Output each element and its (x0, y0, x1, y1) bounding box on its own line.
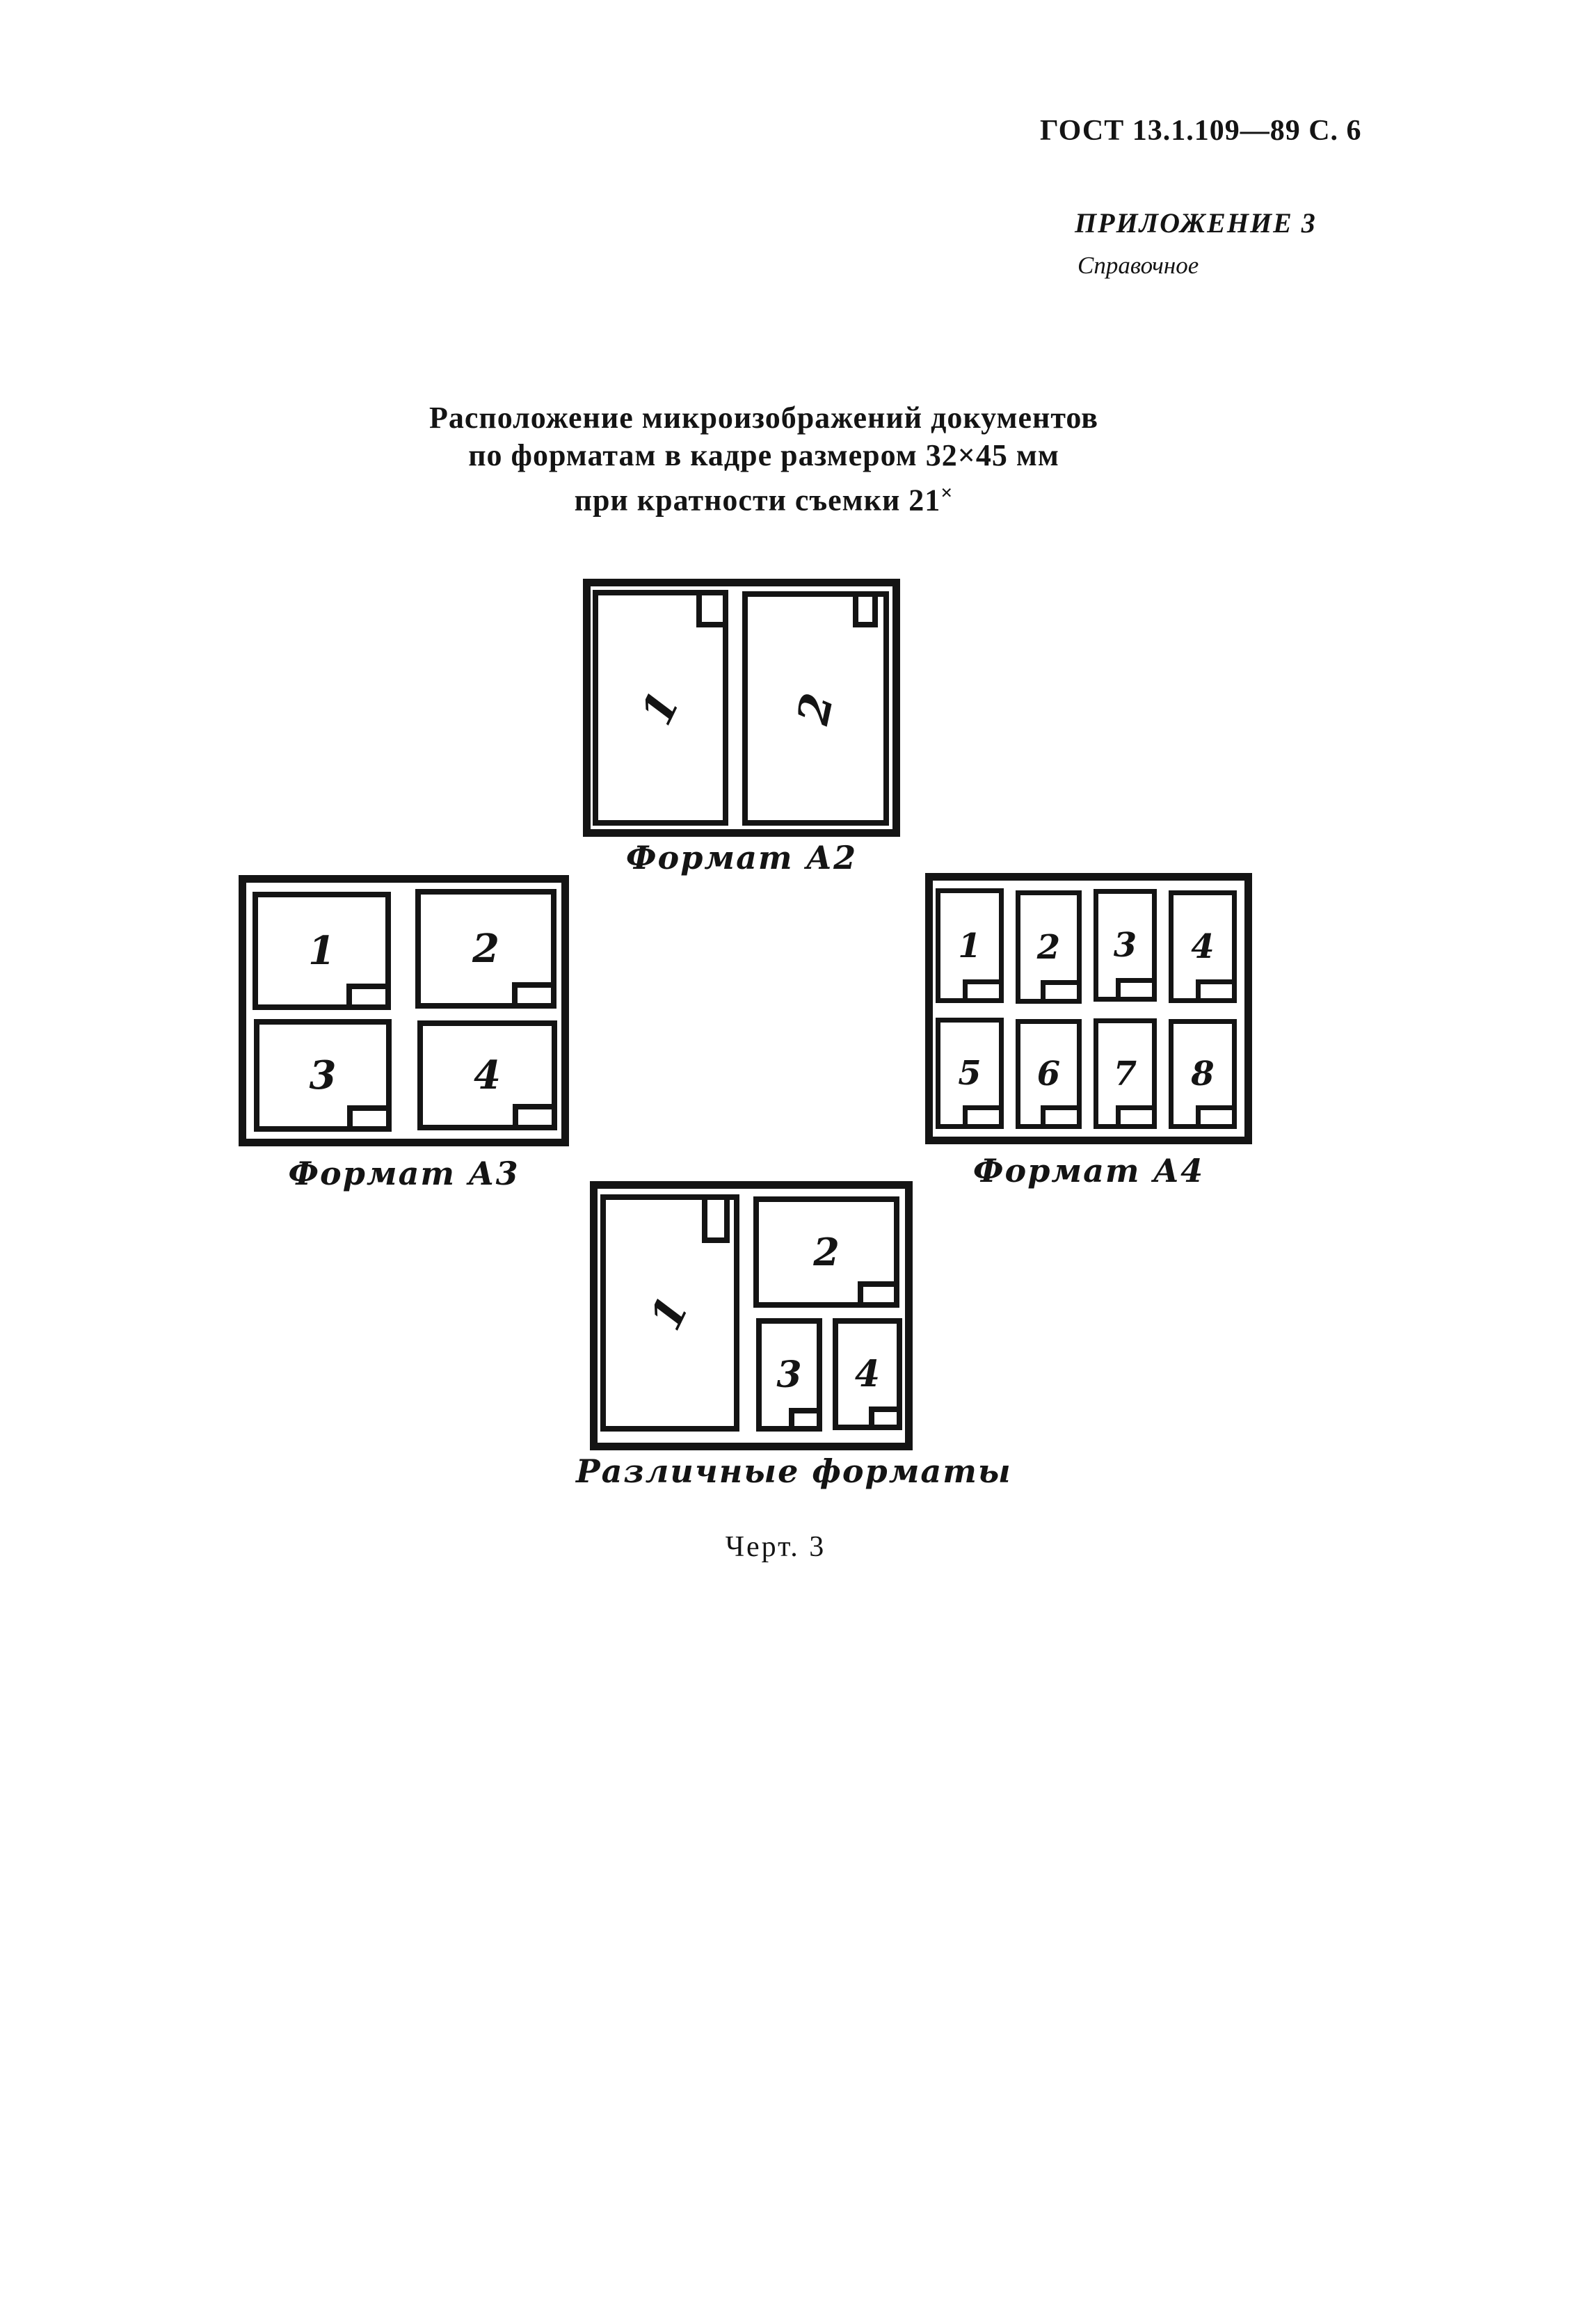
title-line-3-text: при кратности съемки 21 (575, 483, 941, 518)
caption-format-a2: Формат А2 (583, 839, 900, 876)
cell-mixed-2: 2 (753, 1196, 899, 1308)
cell-number: 4 (1191, 930, 1214, 963)
cell-a3-4: 4 (417, 1020, 557, 1130)
gost-page-header: ГОСТ 13.1.109—89 С. 6 (1040, 114, 1362, 147)
corner-notch (1196, 1105, 1232, 1124)
cell-mixed-1: 1 (600, 1194, 739, 1432)
appendix-type: Справочное (1078, 252, 1199, 280)
cell-number: 3 (310, 1056, 337, 1095)
cell-a4-6: 6 (1016, 1019, 1082, 1129)
cell-number: 2 (472, 929, 499, 968)
cell-number: 1 (958, 929, 981, 963)
cell-a2-2: 2 (742, 591, 889, 826)
corner-notch (963, 1105, 999, 1124)
cell-number: 2 (1037, 931, 1060, 964)
cell-number: 2 (792, 689, 840, 728)
corner-notch (858, 1281, 894, 1302)
cell-a4-2: 2 (1016, 890, 1082, 1004)
cell-a3-3: 3 (254, 1019, 392, 1132)
cell-number: 1 (634, 685, 687, 731)
cell-number: 1 (644, 1290, 696, 1336)
cell-a4-5: 5 (936, 1018, 1004, 1129)
figure-number: Черт. 3 (0, 1530, 1551, 1564)
corner-notch (1196, 979, 1232, 998)
corner-notch (789, 1408, 817, 1426)
corner-notch (347, 1105, 386, 1126)
corner-notch (869, 1407, 897, 1425)
cell-number: 3 (776, 1357, 801, 1393)
cell-a2-1: 1 (593, 590, 728, 826)
cell-number: 2 (813, 1233, 840, 1271)
title-line-2: по форматам в кадре размером 32×45 мм (0, 437, 1528, 474)
cell-a4-7: 7 (1094, 1018, 1157, 1129)
cell-number: 8 (1191, 1057, 1214, 1091)
corner-notch (1116, 1105, 1152, 1124)
cell-a4-4: 4 (1169, 890, 1237, 1003)
document-title: Расположение микроизображений документов… (0, 399, 1528, 520)
cell-number: 4 (855, 1356, 880, 1393)
caption-format-a3: Формат А3 (239, 1155, 569, 1192)
cell-number: 5 (958, 1057, 981, 1090)
frame-format-a3: 1 2 3 4 (239, 875, 569, 1146)
cell-number: 3 (1114, 929, 1137, 962)
frame-format-a2: 1 2 (583, 579, 900, 837)
cell-number: 1 (308, 931, 335, 970)
cell-mixed-4: 4 (833, 1318, 902, 1430)
cell-a3-2: 2 (415, 889, 556, 1009)
corner-notch (512, 982, 551, 1003)
corner-notch (963, 979, 999, 998)
appendix-label: ПРИЛОЖЕНИЕ 3 (1075, 207, 1317, 239)
scanned-document-page: ГОСТ 13.1.109—89 С. 6 ПРИЛОЖЕНИЕ 3 Справ… (0, 0, 1570, 2324)
caption-format-a4: Формат А4 (925, 1152, 1252, 1189)
cell-a4-1: 1 (936, 888, 1004, 1003)
title-line-3: при кратности съемки 21× (0, 474, 1528, 520)
title-line-1: Расположение микроизображений документов (0, 399, 1528, 437)
multiply-sup: × (940, 481, 953, 504)
caption-mixed-formats: Различные форматы (576, 1452, 924, 1490)
corner-notch (1041, 980, 1077, 999)
corner-notch (1041, 1105, 1077, 1124)
cell-number: 7 (1114, 1057, 1137, 1091)
cell-a4-3: 3 (1094, 889, 1157, 1002)
corner-notch (346, 984, 385, 1004)
frame-format-a4: 1 2 3 4 5 6 7 8 (925, 873, 1252, 1144)
corner-notch (702, 1200, 730, 1243)
cell-number: 6 (1037, 1057, 1060, 1091)
cell-number: 4 (474, 1056, 501, 1095)
cell-a3-1: 1 (253, 892, 391, 1010)
corner-notch (696, 595, 723, 627)
corner-notch (853, 597, 878, 627)
corner-notch (1116, 978, 1152, 997)
cell-a4-8: 8 (1169, 1019, 1237, 1129)
cell-mixed-3: 3 (756, 1318, 822, 1432)
frame-mixed-formats: 1 2 3 4 (590, 1181, 913, 1450)
corner-notch (513, 1104, 552, 1125)
